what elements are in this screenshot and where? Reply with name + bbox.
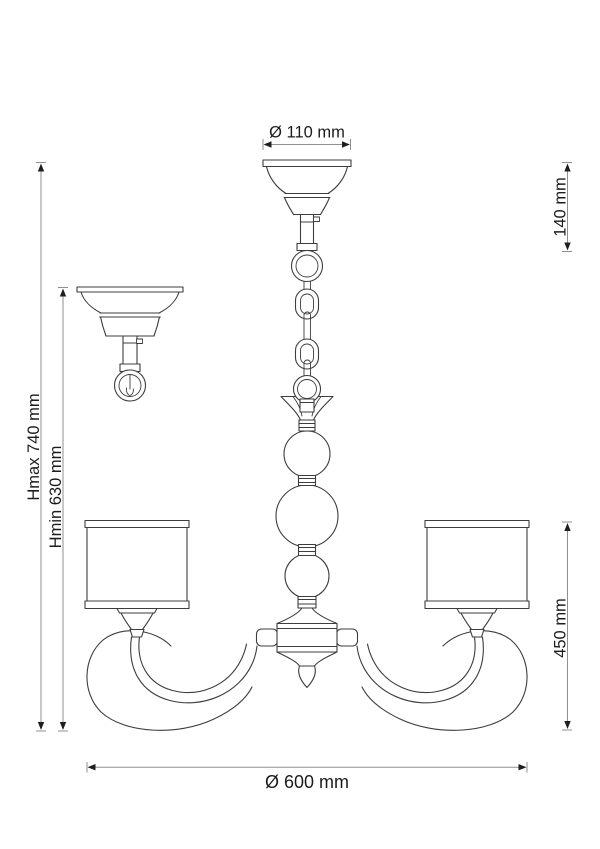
dim-height-max: Hmax 740 mm: [25, 163, 46, 732]
canopy-diameter-label: Ø 110 mm: [269, 124, 345, 142]
spool-2: [299, 545, 316, 556]
center-column-balls: [276, 431, 338, 608]
chandelier-technical-drawing: Ø 110 mm Hmax 740 mm Hmin 630 mm 140 mm …: [0, 0, 600, 849]
bottom-finial: [299, 666, 316, 688]
height-max-label: Hmax 740 mm: [25, 393, 43, 500]
stem-screw: [314, 217, 320, 222]
height-min-label: Hmin 630 mm: [47, 446, 65, 549]
ceiling-canopy: [263, 160, 351, 251]
spool-3: [298, 597, 316, 609]
dim-overall-diameter: Ø 600 mm: [87, 762, 527, 792]
column-collar: [299, 420, 315, 431]
canopy-stem: [301, 215, 314, 244]
dim-body-height: 450 mm: [552, 522, 573, 730]
dimension-drawing-page: Ø 110 mm Hmax 740 mm Hmin 630 mm 140 mm …: [0, 0, 600, 849]
ball-large: [276, 485, 338, 547]
dim-height-min: Hmin 630 mm: [47, 288, 68, 732]
left-arm-scroll: [87, 631, 257, 731]
chain-ring-and-bobeche: [281, 376, 333, 432]
ball-small-top: [284, 431, 330, 477]
center-hub: [257, 608, 358, 688]
stem-collar: [297, 244, 317, 251]
dim-suspension-height: 140 mm: [552, 163, 573, 252]
right-arm-boss: [337, 629, 358, 646]
left-lampshade: [85, 521, 189, 638]
canopy-hook-detail-drawing: [77, 287, 183, 401]
spool-1: [299, 476, 316, 486]
overall-diameter-label: Ø 600 mm: [265, 772, 349, 792]
right-lampshade: [425, 521, 529, 638]
ball-small-bottom: [285, 554, 329, 598]
suspension-chain: [292, 251, 323, 385]
suspension-height-label: 140 mm: [552, 177, 570, 237]
right-arm-scroll: [357, 631, 527, 731]
body-height-label: 450 mm: [552, 598, 570, 658]
dim-canopy-diameter: Ø 110 mm: [263, 124, 351, 151]
detail-stem-screw: [137, 339, 143, 344]
left-arm-boss: [257, 629, 278, 646]
